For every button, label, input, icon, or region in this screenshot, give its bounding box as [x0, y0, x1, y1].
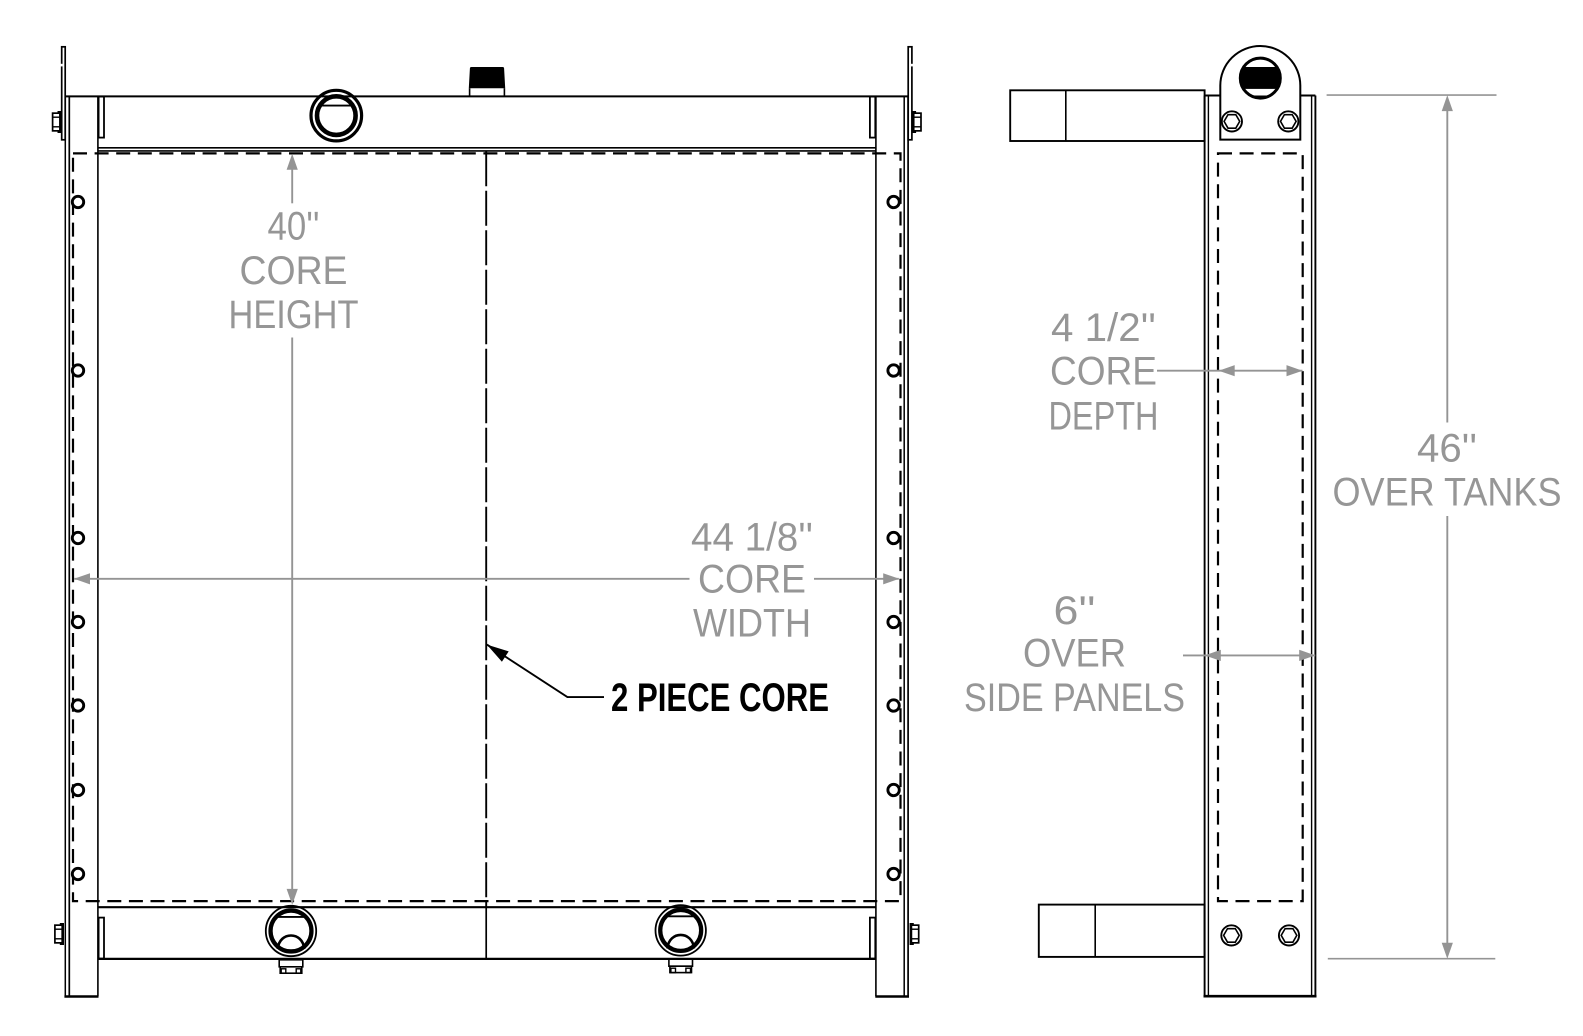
svg-text:DEPTH: DEPTH: [1049, 395, 1159, 439]
svg-text:CORE: CORE: [240, 249, 348, 293]
svg-text:46'': 46'': [1417, 426, 1477, 470]
svg-text:OVER: OVER: [1023, 632, 1126, 676]
svg-text:44 1/8'': 44 1/8'': [691, 515, 813, 559]
svg-text:WIDTH: WIDTH: [693, 602, 811, 646]
svg-text:CORE: CORE: [698, 558, 806, 602]
svg-text:HEIGHT: HEIGHT: [229, 293, 359, 337]
svg-text:40'': 40'': [268, 205, 320, 249]
svg-text:2 PIECE CORE: 2 PIECE CORE: [611, 676, 829, 720]
svg-text:6'': 6'': [1054, 589, 1096, 633]
svg-text:CORE: CORE: [1050, 350, 1157, 394]
svg-text:OVER TANKS: OVER TANKS: [1333, 471, 1562, 515]
svg-text:4 1/2'': 4 1/2'': [1051, 306, 1156, 350]
svg-text:SIDE PANELS: SIDE PANELS: [964, 676, 1185, 720]
